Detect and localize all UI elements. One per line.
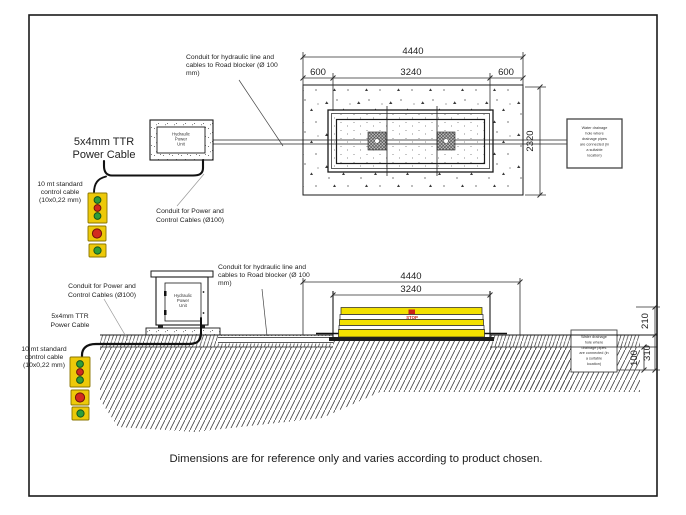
elevation-view: Water drainage hole where drainage pipes… — [21, 264, 660, 432]
anchor-plate-left — [368, 132, 386, 150]
conduit-power-label-1: Conduit for Power and — [156, 208, 224, 215]
cables-plan — [94, 160, 203, 193]
control-cable-label-elev-3: (10x0,22 mm) — [23, 362, 65, 369]
drainage-note-line: Water drainage — [582, 126, 608, 130]
leader-line — [239, 80, 283, 146]
dim-layer: 100 — [629, 350, 640, 366]
drainage-note-elevation: Water drainage hole where drainage pipes… — [571, 330, 617, 372]
drainage-note-line: are connected (in — [579, 351, 608, 355]
conduit-hydraulic-label-plan-2: cables to Road blocker (Ø 100 — [186, 62, 278, 69]
conduit-hydraulic-label-elev-2: cables to Road blocker (Ø 100 — [218, 272, 310, 279]
dim-elev-total: 4440 — [400, 271, 421, 282]
reset-button — [77, 410, 84, 417]
drainage-note-plan: Water drainage hole where drainage pipes… — [567, 119, 622, 168]
emergency-stop-button — [92, 229, 101, 238]
reset-button — [94, 247, 101, 254]
pendant-button-open — [94, 197, 101, 204]
leader-line — [104, 299, 128, 340]
leader-line — [262, 289, 267, 336]
hydraulic-conduit-elevation — [218, 336, 333, 344]
road-blocker: STOP — [339, 308, 485, 338]
control-pendant-plan — [88, 193, 107, 257]
hpu-elev-label-3: Unit — [179, 303, 187, 308]
conduit-hydraulic-label-elev-3: mm) — [218, 280, 232, 287]
control-pendant-elevation — [70, 357, 90, 420]
road-blocker-installation-drawing: 4440 600 3240 600 2320 Hydraulic Power U… — [0, 0, 686, 515]
drainage-note-line: are connected (in — [580, 143, 609, 147]
dim-elev-inner: 3240 — [400, 284, 421, 295]
control-cable-label-1: 10 mt standard — [37, 181, 83, 188]
drainage-note-line: location) — [587, 154, 602, 158]
drainage-note-line: Water drainage — [581, 335, 607, 339]
drainage-note-line: location) — [587, 362, 602, 366]
drainage-note-line: a suitable — [586, 148, 602, 152]
plan-view: 4440 600 3240 600 2320 Hydraulic Power U… — [37, 46, 622, 257]
stop-lamp — [409, 310, 416, 315]
drainage-note-line: hole where — [585, 340, 604, 344]
dim-plan-right: 600 — [498, 67, 514, 78]
hpu-base-slab — [146, 328, 220, 335]
conduit-power-label-2: Control Cables (Ø100) — [156, 217, 224, 224]
emergency-stop-button — [75, 393, 84, 402]
conduit-hydraulic-label-elev-1: Conduit for hydraulic line and — [218, 264, 306, 271]
control-cable-label-elev-1: 10 mt standard — [21, 346, 67, 353]
drainage-note-line: drainage pipes — [582, 346, 607, 350]
power-cable-label-2: Power Cable — [73, 149, 136, 161]
conduit-power-label-elev-2: Control Cables (Ø100) — [68, 292, 136, 299]
anchor-plate-right — [437, 132, 455, 150]
drainage-note-line: drainage pipes — [582, 137, 607, 141]
hpu-plan-label-3: Unit — [177, 142, 185, 147]
dim-height-above: 210 — [640, 313, 651, 329]
control-cable-label-3: (10x0,22 mm) — [39, 197, 81, 204]
dim-depth: 310 — [642, 345, 653, 361]
pendant-button-close — [77, 377, 84, 384]
control-cable-label-elev-2: control cable — [25, 354, 64, 361]
conduit-power-label-elev-1: Conduit for Power and — [68, 283, 136, 290]
dim-plan-center: 3240 — [400, 67, 421, 78]
technical-drawing-page: 4440 600 3240 600 2320 Hydraulic Power U… — [0, 0, 686, 515]
drainage-note-line: a suitable — [586, 357, 602, 361]
leader-line — [177, 174, 204, 206]
dim-plan-total: 4440 — [402, 46, 423, 57]
hpu-plan: Hydraulic Power Unit — [150, 120, 213, 160]
drainage-note-line: hole where — [585, 132, 604, 136]
footer-note: Dimensions are for reference only and va… — [170, 453, 543, 465]
power-cable-label-elev-1: 5x4mm TTR — [51, 313, 88, 320]
conduit-hydraulic-label-plan-3: mm) — [186, 70, 200, 77]
pendant-button-stop — [94, 205, 101, 212]
power-cable-label-elev-2: Power Cable — [51, 322, 90, 329]
stop-sign-text: STOP — [406, 315, 418, 320]
earth-hatch — [100, 335, 640, 432]
pendant-button-close — [94, 213, 101, 220]
dim-plan-depth: 2320 — [525, 130, 536, 151]
dim-plan-left: 600 — [310, 67, 326, 78]
hpu-cabinet: Hydraulic Power Unit — [146, 271, 220, 335]
pendant-button-open — [77, 361, 84, 368]
conduit-hydraulic-label-plan-1: Conduit for hydraulic line and — [186, 54, 274, 61]
pendant-button-stop — [77, 369, 84, 376]
power-cable-label-1: 5x4mm TTR — [74, 136, 134, 148]
control-cable-label-2: control cable — [41, 189, 80, 196]
blocker-frame-plan — [328, 110, 493, 172]
